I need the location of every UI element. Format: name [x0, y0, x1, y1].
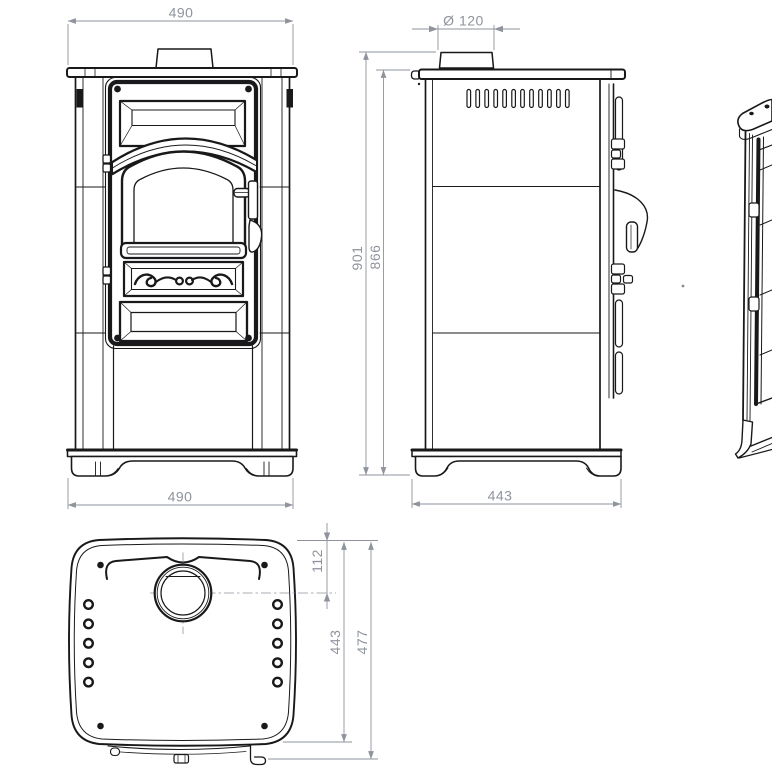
persp-hinge-top [749, 203, 759, 217]
front-view: 490 [67, 5, 297, 510]
door-hinge-bottom [103, 267, 111, 284]
persp-top-plate [738, 100, 772, 131]
top-center-tab [174, 755, 189, 764]
side-handle-grip [627, 222, 638, 252]
front-right-vent [287, 89, 294, 108]
front-left-vent [77, 89, 84, 108]
dim-side-flue-label: Ø 120 [443, 13, 484, 29]
dim-top-flue-offset-label: 112 [309, 549, 325, 573]
door-bolt [114, 86, 121, 93]
side-dim-heights: 901 866 [349, 52, 436, 475]
front-flue-collar [156, 49, 213, 68]
top-corner-screw [97, 562, 104, 569]
dim-top-body-depth-label: 443 [327, 630, 343, 655]
top-view: 112 443 477 [69, 523, 378, 765]
perspective-view [682, 100, 772, 459]
front-top-plate [67, 68, 297, 77]
door-crossbar [121, 243, 246, 258]
dim-front-width-bottom-label: 490 [168, 489, 193, 505]
top-corner-screw [97, 723, 104, 730]
side-body [426, 79, 648, 450]
side-door-edge [609, 84, 647, 398]
front-dim-width-bottom: 490 [68, 478, 293, 509]
front-base [68, 450, 297, 476]
side-flue-collar [440, 53, 494, 69]
drawing-svg: 490 [0, 0, 772, 772]
door-lower-panel [120, 302, 247, 341]
side-top-plate [412, 70, 626, 86]
dim-front-width-top-label: 490 [169, 5, 194, 21]
dim-top-overall-depth-label: 477 [354, 630, 370, 655]
persp-left-edge [743, 132, 753, 421]
top-door-handle [251, 746, 266, 765]
door-window [122, 152, 245, 253]
top-dim-flue-offset: 112 [297, 523, 378, 609]
stove-technical-drawing: 490 [0, 0, 772, 772]
dim-side-height-plate-label: 866 [367, 245, 383, 270]
dim-side-height-overall-label: 901 [349, 246, 365, 271]
persp-hinge-bottom [749, 297, 759, 311]
ornament-scroll [135, 275, 232, 287]
persp-foot [736, 420, 772, 458]
door-ornament-panel [124, 262, 243, 296]
top-corner-screw [261, 562, 268, 569]
side-vent-slots [467, 90, 569, 108]
top-front-edge [108, 746, 266, 765]
front-door [103, 78, 262, 349]
side-dim-flue: Ø 120 [412, 13, 520, 51]
door-bolt [245, 86, 252, 93]
top-corner-screw [261, 723, 268, 730]
dim-side-depth-label: 443 [488, 488, 513, 504]
side-dim-depth: 443 [412, 479, 621, 508]
door-hinge-top [103, 155, 111, 172]
side-view: Ø 120 901 866 [349, 13, 647, 509]
stray-mark [682, 285, 685, 288]
side-base [412, 450, 621, 476]
